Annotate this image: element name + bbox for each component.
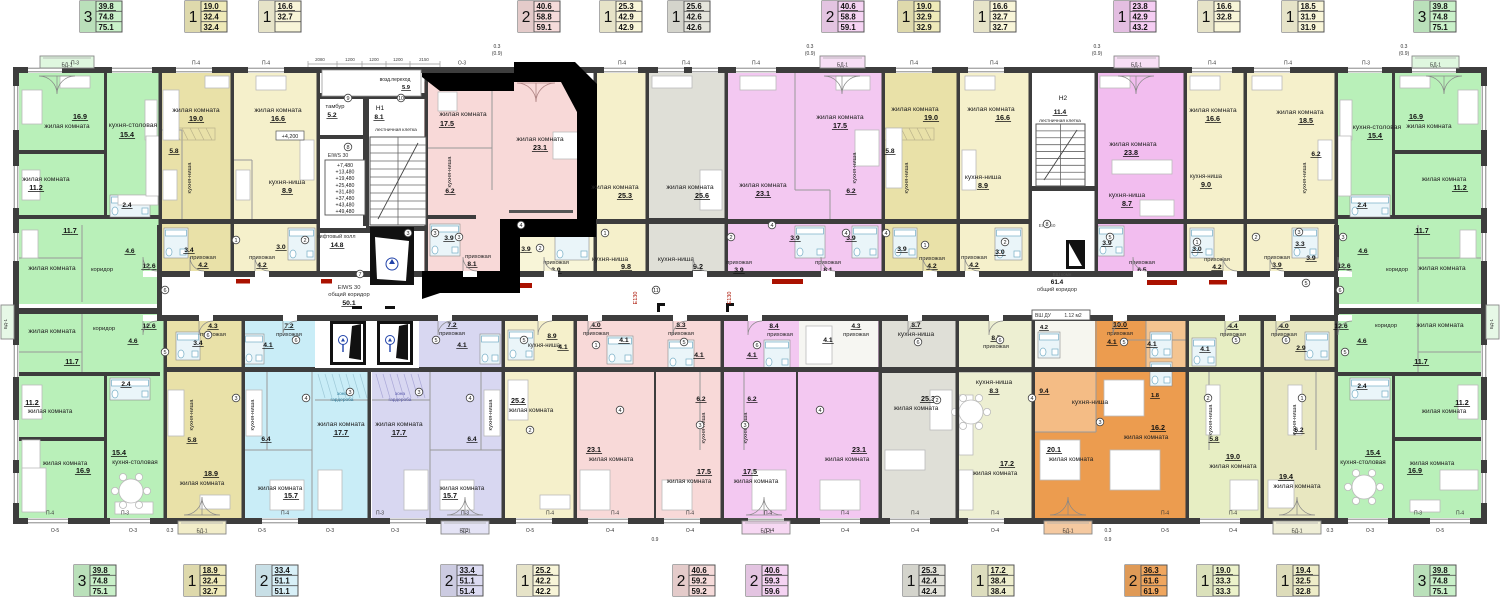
svg-text:EIWS 30: EIWS 30: [328, 153, 349, 159]
svg-text:39.8: 39.8: [99, 2, 115, 11]
svg-text:жилая комната: жилая комната: [973, 470, 1018, 477]
svg-text:61.9: 61.9: [1144, 587, 1160, 596]
svg-text:жилая комната: жилая комната: [1209, 463, 1257, 470]
svg-text:32.4: 32.4: [203, 577, 219, 586]
svg-text:ВШ комн: ВШ комн: [1053, 272, 1072, 277]
svg-text:38.4: 38.4: [991, 577, 1007, 586]
svg-text:3.9: 3.9: [790, 235, 800, 242]
svg-text:БД-1: БД-1: [1062, 529, 1073, 535]
svg-text:17.5: 17.5: [833, 121, 847, 130]
svg-text:лестничная клетка: лестничная клетка: [1039, 119, 1081, 124]
svg-text:17.2: 17.2: [991, 566, 1007, 575]
svg-text:3.9: 3.9: [521, 246, 531, 253]
svg-text:75.1: 75.1: [1433, 587, 1449, 596]
svg-text:61.6: 61.6: [1144, 577, 1160, 586]
svg-text:5.8: 5.8: [885, 148, 894, 155]
svg-text:5: 5: [682, 340, 685, 346]
svg-text:жилая комната: жилая комната: [516, 136, 564, 143]
svg-text:32.8: 32.8: [1217, 13, 1233, 22]
svg-text:40.6: 40.6: [692, 566, 708, 575]
svg-text:4.0: 4.0: [591, 322, 601, 329]
svg-text:гардероба: гардероба: [331, 397, 354, 403]
svg-text:П-4: П-4: [192, 61, 200, 67]
svg-text:18.9: 18.9: [204, 469, 218, 478]
svg-text:БД-1: БД-1: [837, 63, 848, 69]
svg-text:1: 1: [1286, 9, 1295, 26]
svg-text:58.8: 58.8: [537, 13, 553, 22]
svg-text:3.9: 3.9: [444, 235, 454, 242]
svg-text:жилая комната: жилая комната: [967, 106, 1015, 113]
svg-text:4.2: 4.2: [1212, 264, 1222, 271]
svg-text:5: 5: [1234, 338, 1237, 344]
svg-text:51.1: 51.1: [275, 587, 291, 596]
svg-text:4: 4: [844, 231, 847, 237]
svg-text:П-4: П-4: [262, 61, 270, 67]
svg-text:17.2: 17.2: [1000, 459, 1014, 468]
svg-text:БД-1: БД-1: [196, 529, 207, 535]
svg-text:19.0: 19.0: [204, 2, 220, 11]
svg-text:8.9: 8.9: [282, 186, 292, 195]
svg-text:5: 5: [1304, 281, 1307, 287]
svg-text:19.0: 19.0: [1226, 452, 1240, 461]
svg-text:4.2: 4.2: [927, 263, 937, 270]
svg-text:1: 1: [1118, 9, 1127, 26]
svg-text:1: 1: [521, 573, 530, 590]
svg-text:1: 1: [1195, 240, 1198, 246]
svg-text:0.9: 0.9: [652, 537, 659, 543]
svg-text:75.1: 75.1: [99, 23, 115, 32]
svg-text:жилая комната: жилая комната: [891, 106, 939, 113]
svg-text:16.2: 16.2: [1151, 423, 1165, 432]
svg-text:6.4: 6.4: [467, 436, 476, 443]
svg-text:6.2: 6.2: [846, 188, 855, 195]
svg-text:1.12 м2: 1.12 м2: [1064, 313, 1082, 319]
svg-text:прихожая: прихожая: [815, 260, 841, 266]
svg-text:кухня-ниша: кухня-ниша: [1302, 162, 1308, 194]
svg-text:11.4: 11.4: [1054, 109, 1067, 116]
svg-text:кухня-ниша: кухня-ниша: [1109, 192, 1146, 199]
svg-text:2.9: 2.9: [1296, 345, 1306, 352]
svg-text:жилая комната: жилая комната: [1422, 408, 1467, 415]
svg-text:6: 6: [1338, 288, 1341, 294]
svg-text:40.6: 40.6: [841, 2, 857, 11]
svg-text:1: 1: [902, 9, 911, 26]
svg-text:6: 6: [163, 288, 166, 294]
svg-text:3: 3: [84, 9, 93, 26]
svg-text:58.8: 58.8: [841, 13, 857, 22]
svg-text:4.1: 4.1: [1107, 339, 1117, 346]
svg-text:3: 3: [743, 423, 746, 429]
svg-text:1: 1: [978, 9, 987, 26]
svg-text:О-4: О-4: [686, 528, 695, 534]
svg-text:16.6: 16.6: [1217, 2, 1233, 11]
svg-text:1200: 1200: [393, 57, 403, 62]
svg-text:жилая комната: жилая комната: [375, 421, 423, 428]
svg-text:4.1: 4.1: [694, 352, 704, 359]
svg-text:жилая комната: жилая комната: [894, 405, 939, 412]
svg-text:61.4: 61.4: [1051, 279, 1064, 286]
svg-text:общий коридор: общий коридор: [328, 291, 370, 298]
svg-text:О-4: О-4: [1229, 528, 1238, 534]
svg-text:О-4: О-4: [911, 528, 920, 534]
svg-text:16.9: 16.9: [76, 466, 90, 475]
svg-text:17.5: 17.5: [697, 467, 711, 476]
svg-text:32.7: 32.7: [993, 13, 1008, 22]
svg-text:6.2: 6.2: [747, 396, 756, 403]
svg-text:8.7: 8.7: [911, 322, 920, 329]
svg-text:EIWS 30: EIWS 30: [338, 285, 361, 291]
svg-text:2: 2: [729, 235, 732, 241]
svg-text:16.6: 16.6: [1206, 114, 1220, 123]
svg-text:32.8: 32.8: [1296, 587, 1312, 596]
svg-text:19.0: 19.0: [924, 113, 938, 122]
svg-text:1200: 1200: [345, 57, 355, 62]
svg-text:Н2: Н2: [1059, 95, 1068, 102]
svg-text:1: 1: [189, 9, 198, 26]
svg-text:кухня-ниша: кухня-ниша: [447, 156, 453, 188]
svg-text:4: 4: [818, 408, 821, 414]
svg-text:4: 4: [519, 223, 522, 229]
svg-text:БД-1: БД-1: [1131, 63, 1142, 69]
svg-text:4.2: 4.2: [198, 262, 208, 269]
svg-text:5.2: 5.2: [327, 112, 336, 119]
svg-text:23.1: 23.1: [852, 445, 866, 454]
svg-text:19.0: 19.0: [189, 114, 203, 123]
svg-text:11.2: 11.2: [1453, 183, 1467, 192]
svg-text:(0.9): (0.9): [492, 51, 503, 57]
svg-text:П-4: П-4: [46, 511, 54, 517]
svg-text:1: 1: [672, 9, 681, 26]
svg-text:+4,200: +4,200: [282, 134, 299, 140]
svg-text:33.3: 33.3: [1216, 577, 1232, 586]
svg-text:7.2: 7.2: [447, 322, 456, 329]
svg-text:П-4: П-4: [1161, 511, 1169, 517]
svg-text:16.6: 16.6: [278, 2, 294, 11]
svg-text:10: 10: [398, 96, 404, 102]
svg-text:0.3: 0.3: [1401, 44, 1408, 50]
svg-text:жилая комната: жилая комната: [439, 111, 487, 118]
svg-text:жилая комната: жилая комната: [1049, 456, 1094, 463]
svg-text:33.4: 33.4: [460, 566, 476, 575]
svg-text:8.3: 8.3: [989, 388, 998, 395]
svg-text:1: 1: [1202, 9, 1211, 26]
svg-text:8.7: 8.7: [1122, 199, 1132, 208]
svg-text:2: 2: [303, 238, 306, 244]
svg-text:6: 6: [206, 333, 209, 339]
svg-text:5.8: 5.8: [1209, 436, 1218, 443]
svg-text:4.6: 4.6: [128, 338, 137, 345]
svg-text:4: 4: [468, 396, 471, 402]
svg-text:18.9: 18.9: [203, 566, 219, 575]
svg-text:П-4: П-4: [281, 511, 289, 517]
svg-text:0.3: 0.3: [1094, 44, 1101, 50]
svg-text:33.3: 33.3: [1216, 587, 1232, 596]
svg-text:25.3: 25.3: [922, 566, 938, 575]
svg-text:жилая комната: жилая комната: [509, 407, 554, 414]
svg-text:42.4: 42.4: [922, 587, 938, 596]
svg-text:4.1: 4.1: [823, 337, 833, 344]
svg-text:3: 3: [1098, 420, 1101, 426]
svg-text:74.8: 74.8: [99, 13, 115, 22]
svg-text:О-3: О-3: [391, 528, 400, 534]
svg-text:16.6: 16.6: [993, 2, 1009, 11]
svg-text:16.6: 16.6: [271, 114, 285, 123]
svg-text:32.4: 32.4: [204, 13, 220, 22]
svg-text:42.6: 42.6: [687, 13, 703, 22]
svg-text:8: 8: [1045, 222, 1048, 228]
svg-text:17.5: 17.5: [440, 119, 454, 128]
svg-text:18.5: 18.5: [1301, 2, 1317, 11]
svg-text:25.6: 25.6: [687, 2, 703, 11]
svg-text:+13,480: +13,480: [336, 170, 355, 176]
svg-text:кухня-ниша: кухня-ниша: [250, 399, 256, 431]
svg-text:3.4: 3.4: [193, 340, 203, 347]
svg-text:E130: E130: [633, 292, 639, 305]
svg-text:3.9: 3.9: [1306, 255, 1316, 262]
svg-text:жилая комната: жилая комната: [1416, 322, 1464, 329]
svg-text:прихожая: прихожая: [1107, 331, 1133, 337]
svg-text:42.9: 42.9: [1133, 13, 1149, 22]
svg-text:1.8: 1.8: [1151, 393, 1160, 399]
svg-text:5: 5: [522, 338, 525, 344]
svg-text:4: 4: [770, 223, 773, 229]
svg-text:42.4: 42.4: [922, 577, 938, 586]
svg-text:31.9: 31.9: [1301, 13, 1317, 22]
svg-text:П-3: П-3: [376, 511, 384, 517]
svg-text:зона: зона: [337, 392, 347, 397]
svg-text:жилая комната: жилая комната: [44, 123, 90, 130]
svg-text:0.3: 0.3: [1327, 528, 1334, 534]
svg-text:51.1: 51.1: [460, 577, 476, 586]
svg-text:лестничная клетка: лестничная клетка: [375, 128, 417, 133]
svg-text:9.0: 9.0: [1201, 180, 1211, 189]
svg-text:16.6: 16.6: [996, 113, 1010, 122]
svg-text:3: 3: [457, 235, 460, 241]
svg-text:6: 6: [998, 338, 1001, 344]
svg-text:жилая комната: жилая комната: [1406, 123, 1452, 130]
svg-text:жилая комната: жилая комната: [589, 456, 634, 463]
svg-text:11.2: 11.2: [1455, 398, 1469, 407]
svg-text:П-4: П-4: [1229, 511, 1237, 517]
svg-text:31.9: 31.9: [1301, 23, 1317, 32]
svg-text:19.0: 19.0: [917, 2, 933, 11]
svg-text:жилая комната: жилая комната: [172, 107, 220, 114]
svg-text:жилая комната: жилая комната: [1124, 434, 1169, 441]
svg-text:П-4: П-4: [1284, 61, 1292, 67]
svg-text:3.9: 3.9: [734, 267, 744, 274]
svg-text:3: 3: [417, 390, 420, 396]
svg-text:жилая комната: жилая комната: [180, 480, 225, 487]
svg-text:4.1: 4.1: [619, 337, 629, 344]
svg-text:2.4: 2.4: [122, 202, 131, 209]
svg-text:4.1: 4.1: [1200, 346, 1210, 353]
svg-text:39.8: 39.8: [1433, 566, 1449, 575]
svg-text:2: 2: [935, 398, 938, 404]
svg-text:О-5: О-5: [526, 528, 535, 534]
svg-text:6.4: 6.4: [261, 436, 270, 443]
svg-text:2: 2: [528, 428, 531, 434]
svg-text:0.9: 0.9: [1105, 537, 1112, 543]
svg-text:32.7: 32.7: [203, 587, 218, 596]
svg-text:тамбур: тамбур: [326, 104, 345, 110]
svg-text:кухня-ниша: кухня-ниша: [965, 174, 1002, 181]
svg-text:2: 2: [826, 9, 835, 26]
svg-text:6.2: 6.2: [1294, 427, 1303, 434]
svg-text:4: 4: [618, 408, 621, 414]
svg-text:17.5: 17.5: [743, 467, 757, 476]
svg-text:8.1: 8.1: [374, 114, 383, 121]
svg-text:5: 5: [163, 350, 166, 356]
svg-text:коридор: коридор: [93, 326, 115, 332]
svg-text:жилая комната: жилая комната: [666, 184, 714, 191]
svg-text:+7,480: +7,480: [337, 163, 353, 169]
svg-text:гардероба: гардероба: [389, 397, 412, 403]
svg-text:2: 2: [1206, 396, 1209, 402]
svg-text:2.4: 2.4: [121, 381, 130, 388]
svg-text:3.3: 3.3: [1295, 241, 1305, 248]
svg-text:8.4: 8.4: [769, 323, 778, 330]
svg-text:(0.9): (0.9): [1092, 51, 1103, 57]
svg-text:П-4: П-4: [752, 61, 760, 67]
svg-text:11.7: 11.7: [1415, 226, 1429, 235]
svg-text:42.2: 42.2: [536, 577, 552, 586]
svg-text:жилая комната: жилая комната: [667, 478, 712, 485]
svg-text:15.7: 15.7: [443, 491, 457, 500]
svg-text:жилая комната: жилая комната: [734, 478, 779, 485]
svg-text:прихожая: прихожая: [767, 332, 793, 338]
svg-text:прихожая: прихожая: [583, 331, 609, 337]
svg-text:42.9: 42.9: [619, 13, 635, 22]
svg-text:25.3: 25.3: [618, 191, 632, 200]
svg-text:О-4: О-4: [766, 528, 775, 534]
svg-text:16.9: 16.9: [73, 112, 87, 121]
svg-text:О-3: О-3: [326, 528, 335, 534]
svg-text:П-4: П-4: [841, 511, 849, 517]
svg-text:6.2: 6.2: [696, 396, 705, 403]
svg-text:2: 2: [750, 573, 759, 590]
svg-text:П-4: П-4: [1456, 511, 1464, 517]
svg-text:4.1: 4.1: [1147, 341, 1157, 348]
svg-text:жилая комната: жилая комната: [1422, 176, 1467, 183]
svg-text:О-5: О-5: [1436, 528, 1445, 534]
svg-text:50.1: 50.1: [342, 300, 355, 307]
svg-text:П-3: П-3: [121, 511, 129, 517]
svg-text:П-4: П-4: [991, 511, 999, 517]
svg-text:42.2: 42.2: [536, 587, 552, 596]
svg-text:1: 1: [603, 231, 606, 237]
svg-text:32.7: 32.7: [278, 13, 293, 22]
svg-text:3: 3: [234, 396, 237, 402]
svg-text:59.6: 59.6: [765, 587, 781, 596]
svg-text:кухня-столовая: кухня-столовая: [109, 122, 158, 129]
svg-text:П-4: П-4: [611, 511, 619, 517]
svg-text:жилая комната: жилая комната: [28, 265, 76, 272]
svg-text:+43,480: +43,480: [336, 203, 355, 209]
svg-text:4.1: 4.1: [263, 342, 273, 349]
svg-text:15.7: 15.7: [284, 491, 298, 500]
svg-text:23.1: 23.1: [587, 445, 601, 454]
svg-text:23.1: 23.1: [533, 143, 547, 152]
svg-text:2.4: 2.4: [1357, 202, 1366, 209]
svg-text:17.7: 17.7: [392, 428, 406, 437]
svg-text:О-3: О-3: [1366, 528, 1375, 534]
svg-text:33.4: 33.4: [275, 566, 291, 575]
svg-text:0.3: 0.3: [807, 44, 814, 50]
svg-text:20.1: 20.1: [1047, 445, 1061, 454]
svg-text:коридор: коридор: [1386, 267, 1408, 273]
svg-text:51.1: 51.1: [275, 577, 291, 586]
svg-text:1: 1: [1300, 396, 1303, 402]
svg-text:2: 2: [1129, 573, 1138, 590]
svg-text:43.2: 43.2: [1133, 23, 1149, 32]
svg-text:59.1: 59.1: [841, 23, 857, 32]
svg-text:8: 8: [346, 145, 349, 151]
svg-text:2: 2: [1254, 235, 1257, 241]
svg-text:П-4: П-4: [911, 511, 919, 517]
svg-text:1: 1: [188, 573, 197, 590]
svg-text:15.4: 15.4: [1366, 448, 1380, 457]
svg-text:59.1: 59.1: [537, 23, 553, 32]
svg-text:2: 2: [260, 573, 269, 590]
svg-text:6: 6: [1284, 338, 1287, 344]
svg-text:11.7: 11.7: [65, 357, 79, 366]
svg-text:кухня-ниша: кухня-ниша: [189, 399, 195, 431]
svg-text:жилая комната: жилая комната: [1418, 265, 1466, 272]
svg-text:9: 9: [346, 96, 349, 102]
svg-text:2: 2: [522, 9, 531, 26]
svg-text:3.9: 3.9: [897, 246, 907, 253]
svg-text:25.2: 25.2: [511, 396, 525, 405]
svg-text:4: 4: [1030, 396, 1033, 402]
svg-text:75.1: 75.1: [93, 587, 109, 596]
svg-text:прихожая: прихожая: [190, 255, 216, 261]
svg-text:5: 5: [1343, 350, 1346, 356]
svg-text:11.7: 11.7: [63, 226, 77, 235]
svg-text:прихожая: прихожая: [843, 332, 869, 338]
svg-text:1: 1: [907, 573, 916, 590]
svg-text:О-4: О-4: [841, 528, 850, 534]
svg-text:жилая комната: жилая комната: [1273, 483, 1321, 490]
svg-text:8.9: 8.9: [547, 333, 556, 340]
svg-text:5: 5: [1122, 340, 1125, 346]
svg-text:кухня-столовая: кухня-столовая: [1340, 459, 1386, 466]
svg-text:59.3: 59.3: [765, 577, 781, 586]
svg-text:прихожая: прихожая: [439, 331, 465, 337]
svg-text:5: 5: [434, 338, 437, 344]
svg-text:5.8: 5.8: [187, 437, 196, 444]
svg-text:БД-1: БД-1: [3, 318, 8, 329]
svg-text:19.0: 19.0: [1216, 566, 1232, 575]
svg-text:прихожая: прихожая: [249, 255, 275, 261]
svg-text:6: 6: [755, 343, 758, 349]
svg-text:74.8: 74.8: [93, 577, 109, 586]
svg-text:П-4: П-4: [618, 61, 626, 67]
svg-text:3: 3: [698, 423, 701, 429]
svg-text:0.3: 0.3: [1105, 528, 1112, 534]
svg-text:8.3: 8.3: [676, 322, 685, 329]
svg-text:О-5: О-5: [1161, 528, 1170, 534]
svg-text:прихожая: прихожая: [465, 254, 491, 260]
svg-text:0.3: 0.3: [494, 44, 501, 50]
svg-text:36.3: 36.3: [1144, 566, 1160, 575]
svg-text:жилая комната: жилая комната: [254, 107, 302, 114]
svg-text:40.6: 40.6: [537, 2, 553, 11]
svg-text:4: 4: [304, 396, 307, 402]
svg-text:О-4: О-4: [991, 528, 1000, 534]
svg-text:40.6: 40.6: [765, 566, 781, 575]
svg-text:3: 3: [78, 573, 87, 590]
svg-text:1: 1: [604, 9, 613, 26]
